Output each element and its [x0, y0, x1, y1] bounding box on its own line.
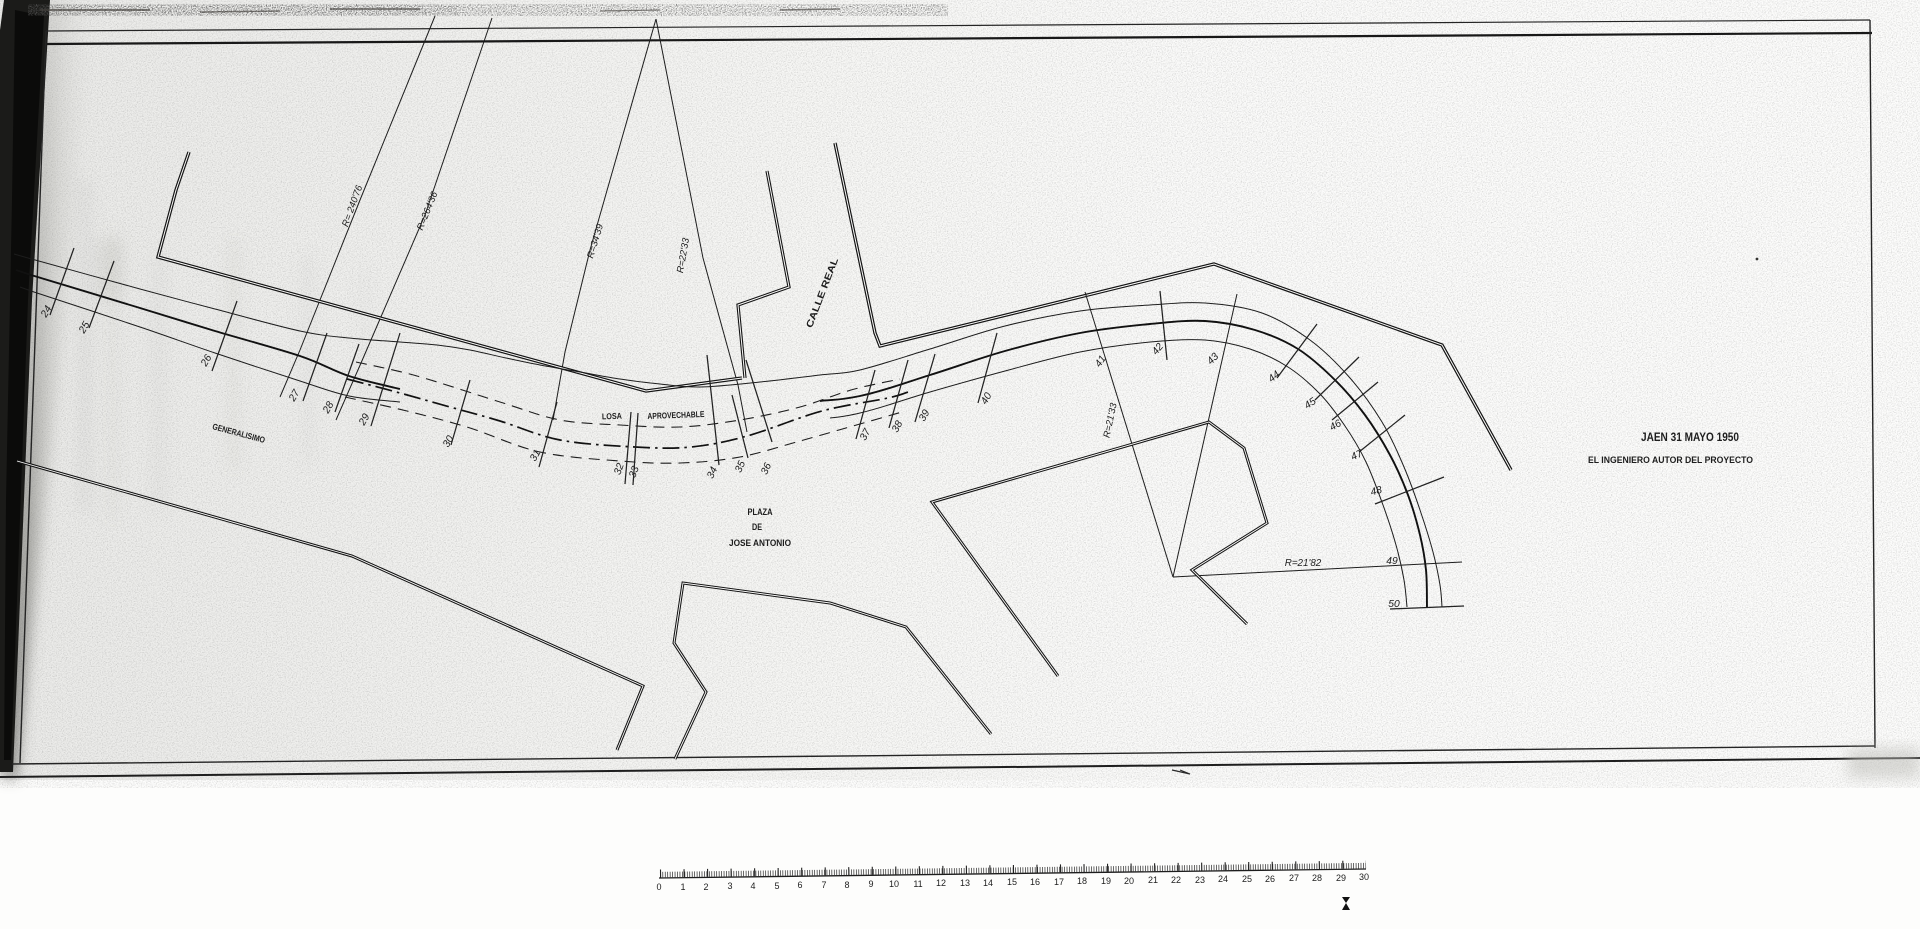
svg-text:8: 8	[844, 880, 849, 890]
svg-text:24: 24	[1218, 874, 1228, 884]
svg-text:30: 30	[1359, 872, 1369, 882]
svg-text:50: 50	[1388, 599, 1400, 610]
svg-text:18: 18	[1077, 876, 1087, 886]
svg-text:1: 1	[680, 882, 685, 892]
svg-text:15: 15	[1007, 877, 1017, 887]
svg-text:4: 4	[750, 881, 755, 891]
svg-text:3: 3	[727, 881, 732, 891]
svg-text:12: 12	[936, 878, 946, 888]
svg-text:EL INGENIERO AUTOR DEL PROYECT: EL INGENIERO AUTOR DEL PROYECTO	[1588, 455, 1753, 466]
svg-text:21: 21	[1148, 875, 1158, 885]
svg-text:29: 29	[1336, 873, 1346, 883]
svg-text:JOSE ANTONIO: JOSE ANTONIO	[729, 538, 791, 548]
svg-text:APROVECHABLE: APROVECHABLE	[647, 409, 705, 421]
svg-text:5: 5	[774, 881, 779, 891]
svg-text:19: 19	[1101, 876, 1111, 886]
svg-text:14: 14	[983, 878, 993, 888]
svg-text:22: 22	[1171, 875, 1181, 885]
svg-text:16: 16	[1030, 877, 1040, 887]
svg-text:LOSA: LOSA	[602, 411, 622, 422]
svg-text:28: 28	[1312, 873, 1322, 883]
svg-text:11: 11	[913, 879, 922, 889]
svg-text:2: 2	[703, 882, 708, 892]
svg-text:R=21'82: R=21'82	[1285, 558, 1322, 569]
svg-text:JAEN 31 MAYO 1950: JAEN 31 MAYO 1950	[1641, 432, 1739, 444]
svg-text:26: 26	[1265, 874, 1275, 884]
svg-text:PLAZA: PLAZA	[748, 507, 773, 517]
svg-text:25: 25	[1242, 874, 1252, 884]
svg-text:7: 7	[821, 880, 826, 890]
svg-text:20: 20	[1124, 876, 1134, 886]
svg-text:10: 10	[889, 879, 899, 889]
svg-text:9: 9	[868, 879, 873, 889]
svg-text:0: 0	[656, 882, 661, 892]
svg-text:23: 23	[1195, 875, 1205, 885]
svg-text:27: 27	[1289, 873, 1299, 883]
svg-text:DE: DE	[752, 522, 762, 532]
svg-text:49: 49	[1386, 556, 1398, 567]
svg-text:13: 13	[960, 878, 970, 888]
svg-text:6: 6	[797, 880, 802, 890]
svg-text:17: 17	[1054, 877, 1064, 887]
